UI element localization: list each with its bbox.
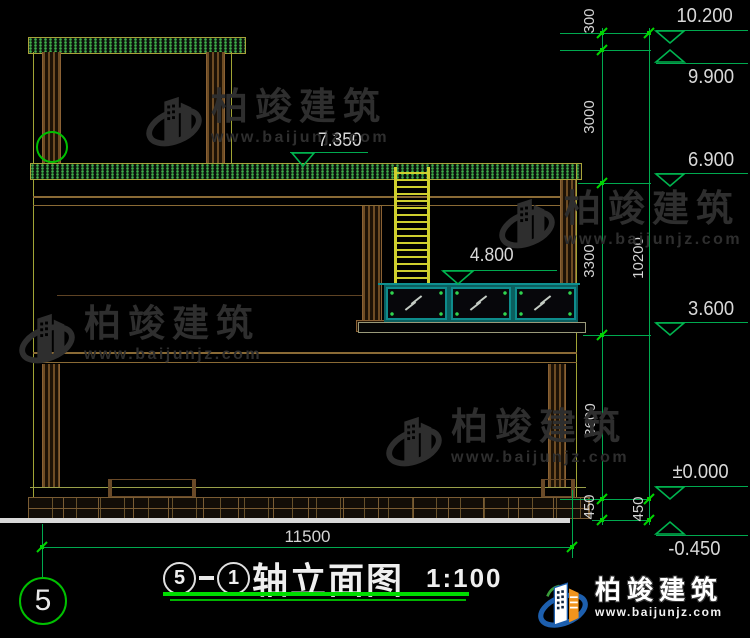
- level-label-9900: 9.900: [688, 66, 734, 89]
- level-label-6900: 6.900: [688, 149, 734, 172]
- dim-total-width: 11500: [270, 527, 345, 547]
- dim-3600: 3600: [583, 400, 597, 440]
- level-label-minus450: -0.450: [668, 538, 720, 561]
- cad-drawing-canvas: 10.200 9.900 6.900 3.600 ±0.000 -0.450 7…: [0, 0, 750, 638]
- title-underline-thick: [163, 592, 469, 596]
- footer-logo-url: www.baijunjz.com: [595, 605, 723, 619]
- dim-3300: 3300: [582, 241, 596, 281]
- drawing-title: 5 - 1 轴立面图 1:100: [163, 552, 503, 604]
- footer-logo: 柏竣建筑 www.baijunjz.com: [537, 576, 723, 634]
- title-axis-end: 1: [228, 567, 239, 590]
- title-axis-start: 5: [174, 567, 185, 590]
- dimension-tick-dots: [40, 31, 651, 549]
- title-axis-start-circle: 5: [163, 562, 196, 595]
- level-label-3600: 3.600: [688, 298, 734, 321]
- title-underline-thin: [170, 599, 466, 601]
- level-label-10200: 10.200: [676, 5, 732, 28]
- dim-10200: 10200: [631, 234, 645, 282]
- title-axis-end-circle: 1: [217, 562, 250, 595]
- level-label-zero: ±0.000: [672, 461, 728, 484]
- dim-300: 300: [582, 5, 596, 37]
- axis-bubble-label: 5: [35, 584, 52, 618]
- baijun-logo-icon: [537, 576, 589, 634]
- spot-label-porch: 4.800: [470, 245, 514, 267]
- dim-3000: 3000: [582, 97, 596, 137]
- spot-label-roof: 7.350: [318, 130, 362, 152]
- title-text: 轴立面图: [252, 552, 404, 604]
- dim-450-outer: 450: [631, 493, 645, 525]
- dimension-marks-overlay: [0, 0, 750, 638]
- title-dash: -: [199, 576, 214, 580]
- title-scale: 1:100: [426, 563, 503, 594]
- dim-450-inner: 450: [582, 491, 596, 523]
- elevation-triangles: [292, 31, 684, 534]
- footer-logo-brand: 柏竣建筑: [595, 576, 723, 605]
- axis-bubble: 5: [19, 577, 67, 625]
- dimension-tick-marks: [37, 28, 654, 552]
